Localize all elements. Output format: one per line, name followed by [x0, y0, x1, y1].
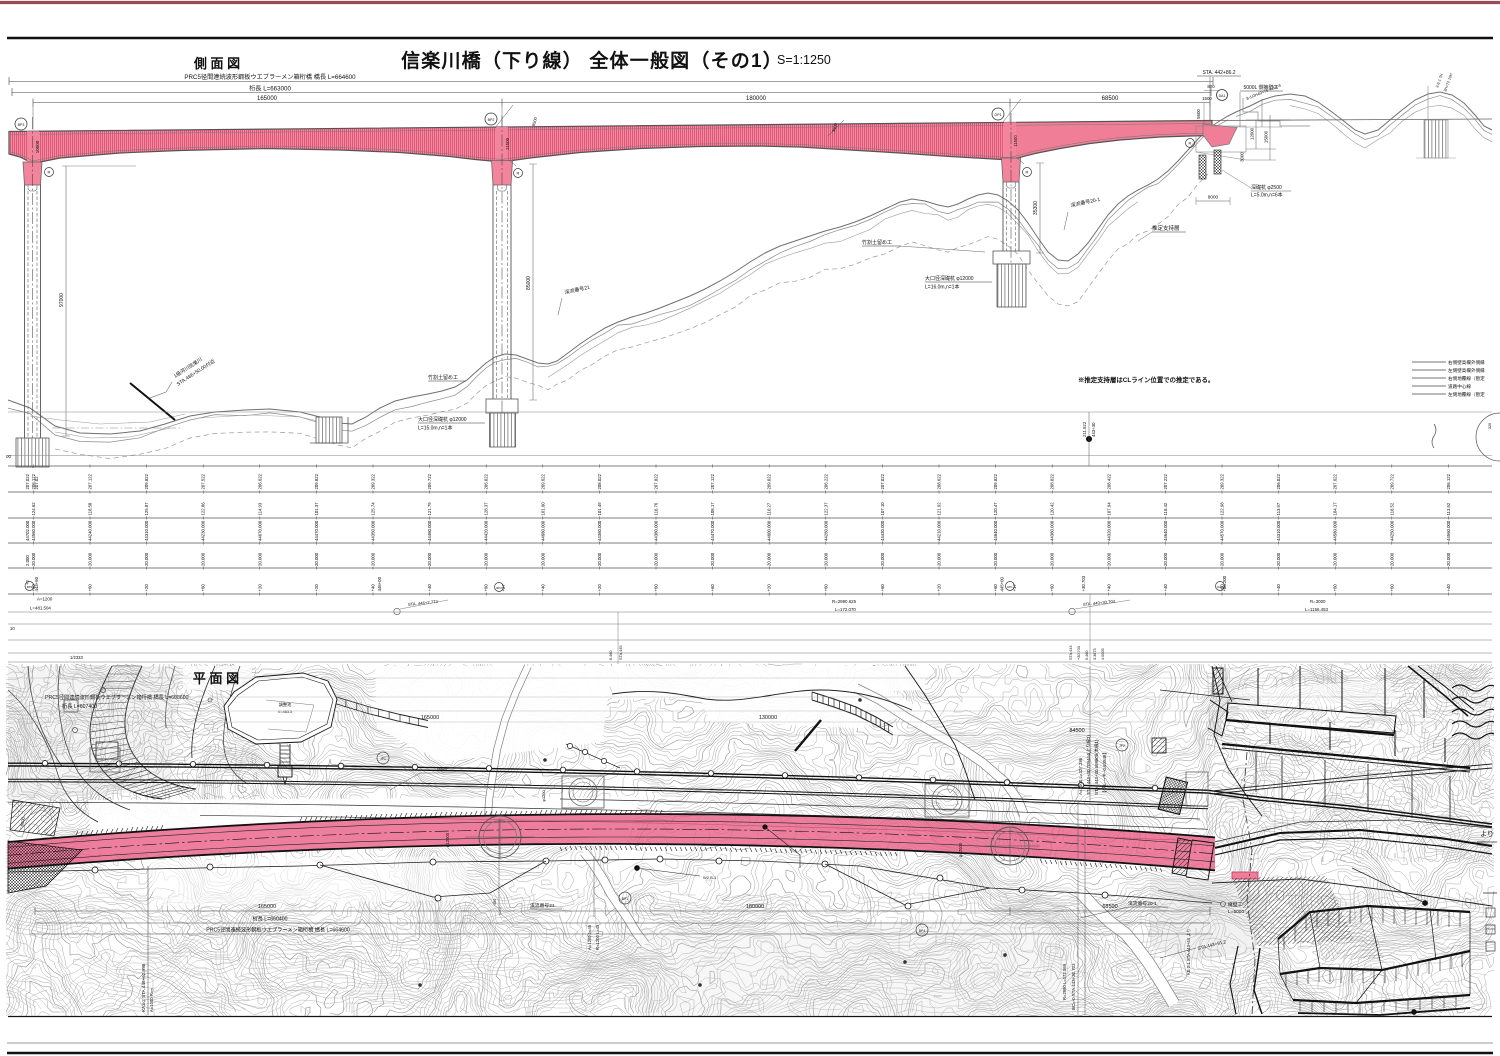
svg-text:+60: +60 — [88, 584, 93, 592]
svg-text:108.17: 108.17 — [710, 502, 715, 516]
svg-text:128.37: 128.37 — [484, 502, 489, 516]
svg-text:L=481.504: L=481.504 — [30, 606, 51, 611]
svg-text:10: 10 — [10, 626, 15, 631]
svg-text:44360.000: 44360.000 — [597, 520, 602, 541]
svg-text:渓流番号20-1: 渓流番号20-1 — [1128, 900, 1157, 907]
svg-text:20.000: 20.000 — [1050, 552, 1055, 566]
svg-text:114.93: 114.93 — [257, 502, 262, 515]
svg-text:+17: +17 — [1012, 584, 1017, 592]
svg-text:20.000: 20.000 — [1163, 552, 1168, 566]
svg-text:44680.000: 44680.000 — [540, 520, 545, 541]
svg-text:44310.000: 44310.000 — [1276, 520, 1281, 541]
svg-text:12000: 12000 — [1250, 127, 1255, 140]
svg-text:R: R — [48, 170, 51, 175]
svg-text:BP2: BP2 — [488, 118, 495, 122]
svg-text:20.000: 20.000 — [597, 552, 602, 566]
svg-text:PRC5径間連続波形鋼板ウエブラーメン箱桁橋 橋長 L=66: PRC5径間連続波形鋼板ウエブラーメン箱桁橋 橋長 L=664600 — [206, 926, 350, 934]
svg-text:44460.000: 44460.000 — [427, 520, 432, 541]
svg-text:+60: +60 — [1333, 584, 1338, 592]
svg-text:20.000: 20.000 — [1276, 552, 1281, 566]
svg-text:右側壁高欄外側縁: 右側壁高欄外側縁 — [1448, 359, 1485, 366]
svg-text:20.000: 20.000 — [144, 552, 149, 566]
svg-text:20.000: 20.000 — [427, 552, 432, 566]
svg-text:208.422: 208.422 — [1106, 473, 1111, 489]
svg-text:44260.000: 44260.000 — [823, 520, 828, 541]
svg-text:R=2990 L=172.069: R=2990 L=172.069 — [1062, 963, 1067, 1000]
svg-text:R=1200 L=45: R=1200 L=45 — [595, 924, 600, 950]
svg-text:L=5.0m,n=6本: L=5.0m,n=6本 — [1251, 192, 1283, 199]
svg-text:207.822: 207.822 — [654, 473, 659, 489]
svg-text:6.480: 6.480 — [609, 650, 613, 660]
svg-text:180000: 180000 — [746, 904, 764, 910]
svg-text:44600.000: 44600.000 — [767, 520, 772, 541]
svg-text:BP3: BP3 — [18, 123, 25, 127]
svg-text:+20: +20 — [314, 584, 319, 592]
svg-text:+20: +20 — [767, 584, 772, 592]
svg-text:44470.000: 44470.000 — [710, 520, 715, 541]
svg-text:深礎杭 φ2500: 深礎杭 φ2500 — [1251, 184, 1282, 191]
svg-text:φ12000: φ12000 — [445, 832, 450, 847]
svg-text:+20: +20 — [937, 584, 942, 592]
svg-text:L=15.0m,n=1本: L=15.0m,n=1本 — [418, 425, 452, 432]
svg-text:V=463.5: V=463.5 — [278, 710, 292, 714]
svg-text:44640.000: 44640.000 — [1163, 520, 1168, 541]
svg-text:165000: 165000 — [257, 96, 278, 102]
svg-text:+60: +60 — [993, 584, 998, 592]
svg-text:BP1: BP1 — [622, 897, 629, 901]
svg-text:122.98: 122.98 — [1220, 502, 1225, 516]
svg-text:+27: +27 — [501, 584, 506, 592]
svg-text:※推定支持層はCLライン位置での推定である。: ※推定支持層はCLライン位置での推定である。 — [1078, 375, 1214, 384]
svg-text:BP3: BP3 — [27, 585, 33, 589]
svg-text:20.000: 20.000 — [654, 552, 659, 566]
svg-text:44560.000: 44560.000 — [31, 520, 36, 541]
svg-text:44380.000: 44380.000 — [1050, 520, 1055, 541]
svg-text:121.79: 121.79 — [427, 502, 432, 516]
svg-text:A=1200 L=45: A=1200 L=45 — [587, 924, 592, 950]
svg-text:桁長 L=663000: 桁長 L=663000 — [249, 85, 291, 93]
svg-text:118.52: 118.52 — [1389, 502, 1394, 515]
svg-text:φ1200: φ1200 — [541, 789, 546, 801]
svg-text:97000: 97000 — [59, 293, 65, 307]
svg-text:44350.000: 44350.000 — [371, 520, 376, 541]
svg-text:20.000: 20.000 — [993, 552, 998, 566]
svg-text:209.722: 209.722 — [427, 473, 432, 489]
svg-text:446+00: 446+00 — [377, 576, 382, 591]
svg-text:20.000: 20.000 — [1389, 552, 1394, 566]
svg-text:206.022: 206.022 — [484, 473, 489, 489]
svg-text:44430.000: 44430.000 — [880, 520, 885, 541]
svg-text:121.92: 121.92 — [937, 502, 942, 516]
svg-text:20.000: 20.000 — [1220, 552, 1225, 566]
svg-text:0.480: 0.480 — [1085, 650, 1089, 660]
svg-text:+60: +60 — [201, 584, 206, 592]
svg-text:+40: +40 — [1446, 584, 1451, 592]
svg-text:DP1: DP1 — [995, 113, 1002, 117]
svg-text:10000: 10000 — [35, 140, 40, 153]
svg-text:20.000: 20.000 — [1446, 552, 1451, 566]
svg-text:竹割土留め工: 竹割土留め工 — [428, 374, 458, 381]
svg-text:207.122: 207.122 — [710, 473, 715, 489]
svg-text:3000: 3000 — [1240, 152, 1245, 162]
svg-text:44420.000: 44420.000 — [484, 520, 489, 541]
svg-text:+60: +60 — [484, 584, 489, 592]
svg-text:JP1: JP1 — [380, 757, 386, 761]
svg-text:207.622: 207.622 — [1333, 473, 1338, 489]
svg-text:平 面 図: 平 面 図 — [193, 671, 239, 686]
svg-text:PRC5径間連続波形鋼板ウエブラーメン箱桁橋 橋長 L=66: PRC5径間連続波形鋼板ウエブラーメン箱桁橋 橋長 L=664600 — [184, 73, 356, 81]
svg-text:443+60: 443+60 — [34, 576, 39, 591]
svg-text:209.822: 209.822 — [144, 473, 149, 489]
svg-text:208.022: 208.022 — [1050, 473, 1055, 489]
svg-text:165000: 165000 — [421, 715, 439, 721]
svg-text:A=1200: A=1200 — [37, 597, 53, 602]
svg-text:84500: 84500 — [1069, 728, 1084, 734]
svg-text:101.37: 101.37 — [314, 502, 319, 516]
svg-text:JP2: JP2 — [1119, 744, 1125, 748]
svg-text:443+30: 443+30 — [1091, 422, 1096, 437]
svg-text:渓流番号21: 渓流番号21 — [530, 902, 555, 909]
svg-text:道路中心線: 道路中心線 — [1448, 383, 1471, 390]
svg-text:44250.000: 44250.000 — [1389, 520, 1394, 541]
svg-text:+20: +20 — [597, 584, 602, 592]
svg-text:320: 320 — [1488, 423, 1492, 429]
svg-text:A=1000 R=∞: A=1000 R=∞ — [149, 988, 154, 1012]
svg-text:180000: 180000 — [746, 96, 767, 102]
svg-text:44570.000: 44570.000 — [1220, 520, 1225, 541]
svg-text:大口径深礎杭 φ12000: 大口径深礎杭 φ12000 — [418, 416, 467, 423]
svg-text:信楽川橋（下り線） 全体一般図（その1）: 信楽川橋（下り線） 全体一般図（その1） — [401, 49, 783, 72]
svg-text:206.622: 206.622 — [257, 473, 262, 489]
svg-text:調整池: 調整池 — [279, 701, 292, 708]
svg-text:207.022: 207.022 — [25, 473, 30, 489]
svg-text:推定支持層: 推定支持層 — [1152, 224, 1180, 232]
svg-text:+20: +20 — [144, 584, 149, 592]
svg-text:44320.000: 44320.000 — [1106, 520, 1111, 541]
svg-text:120.42: 120.42 — [1050, 502, 1055, 516]
svg-text:+40: +40 — [1276, 584, 1281, 592]
svg-text:44310.000: 44310.000 — [144, 520, 149, 541]
svg-text:20.000: 20.000 — [937, 552, 942, 566]
svg-text:5000L 側擁壁工: 5000L 側擁壁工 — [1243, 84, 1278, 91]
svg-text:11500: 11500 — [1013, 135, 1018, 147]
svg-text:2.000: 2.000 — [25, 555, 30, 566]
svg-text:右側地覆線（暫定: 右側地覆線（暫定 — [1448, 375, 1485, 382]
svg-text:+60: +60 — [823, 584, 828, 592]
svg-text:113.97: 113.97 — [1276, 502, 1281, 515]
svg-text:20.000: 20.000 — [257, 552, 262, 566]
svg-text:+20: +20 — [257, 584, 262, 592]
svg-text:206.022: 206.022 — [1276, 473, 1281, 489]
svg-text:L=16.0m,n=1本: L=16.0m,n=1本 — [925, 284, 959, 291]
svg-text:R: R — [517, 171, 520, 176]
svg-text:S=1:1250: S=1:1250 — [777, 53, 831, 67]
svg-text:11500: 11500 — [505, 137, 510, 150]
svg-text:KA3-2 STA.446+62.998: KA3-2 STA.446+62.998 — [141, 963, 146, 1012]
svg-text:208.022: 208.022 — [597, 473, 602, 489]
svg-text:STA.443: STA.443 — [1069, 646, 1073, 661]
svg-text:125.74: 125.74 — [371, 502, 376, 516]
svg-text:20.000: 20.000 — [1333, 552, 1338, 566]
svg-text:20.000: 20.000 — [767, 552, 772, 566]
svg-text:209.322: 209.322 — [371, 473, 376, 489]
svg-text:104.17: 104.17 — [1333, 502, 1338, 516]
svg-text:207.522: 207.522 — [201, 473, 206, 489]
svg-text:桁長 L=660400: 桁長 L=660400 — [252, 915, 287, 923]
svg-text:118.58: 118.58 — [88, 502, 93, 515]
svg-text:85000: 85000 — [526, 276, 532, 290]
svg-text:L=1156.453: L=1156.453 — [1305, 607, 1329, 612]
svg-text:大口径深礎杭 φ12000: 大口径深礎杭 φ12000 — [925, 275, 974, 282]
svg-text:800: 800 — [1207, 84, 1215, 89]
svg-text:+86.200: +86.200 — [1222, 575, 1227, 591]
svg-text:207.222: 207.222 — [1163, 473, 1168, 489]
svg-text:113.52: 113.52 — [1446, 502, 1451, 515]
svg-text:450: 450 — [493, 899, 497, 905]
svg-text:44580.000: 44580.000 — [1333, 520, 1338, 541]
svg-text:竹割土留め工: 竹割土留め工 — [862, 239, 892, 246]
svg-text:122.37: 122.37 — [823, 502, 828, 516]
svg-text:20.000: 20.000 — [371, 552, 376, 566]
svg-text:165000: 165000 — [258, 904, 276, 910]
svg-text:+30.703: +30.703 — [1081, 575, 1086, 591]
svg-text:STA.445: STA.445 — [619, 646, 623, 661]
svg-text:124.62: 124.62 — [31, 502, 36, 516]
svg-text:A=1000,L=327.286: A=1000,L=327.286 — [1078, 757, 1083, 795]
svg-text:120.47: 120.47 — [993, 502, 998, 516]
svg-text:101.49: 101.49 — [597, 502, 602, 516]
svg-text:20.000: 20.000 — [710, 552, 715, 566]
svg-text:207.122: 207.122 — [88, 473, 93, 489]
svg-text:44640.000: 44640.000 — [993, 520, 998, 541]
svg-text:擁壁工: 擁壁工 — [1228, 901, 1243, 908]
svg-text:118.42: 118.42 — [1163, 502, 1168, 515]
svg-text:44210.000: 44210.000 — [937, 520, 942, 541]
svg-text:44470.000: 44470.000 — [314, 520, 319, 541]
svg-text:桁長 L=607400: 桁長 L=607400 — [62, 702, 97, 710]
svg-text:【ブレーキ−0.63848】: 【ブレーキ−0.63848】 — [1101, 750, 1107, 795]
svg-text:44380.000: 44380.000 — [654, 520, 659, 541]
svg-text:+60: +60 — [1050, 584, 1055, 592]
svg-text:130000: 130000 — [759, 715, 777, 721]
svg-text:125.87: 125.87 — [144, 502, 149, 516]
svg-text:20.000: 20.000 — [484, 552, 489, 566]
svg-text:+30.703: +30.703 — [1077, 646, 1081, 660]
svg-text:209.722: 209.722 — [1389, 473, 1394, 489]
svg-text:側 面 図: 側 面 図 — [193, 56, 240, 71]
svg-text:+40: +40 — [1106, 584, 1111, 592]
svg-text:+60: +60 — [710, 584, 715, 592]
svg-text:44230.000: 44230.000 — [201, 520, 206, 541]
svg-text:20.000: 20.000 — [88, 552, 93, 566]
svg-text:44560.000: 44560.000 — [1446, 520, 1451, 541]
svg-text:+40: +40 — [540, 584, 545, 592]
svg-text:1/2333: 1/2333 — [70, 655, 83, 660]
svg-text:209.022: 209.022 — [767, 473, 772, 489]
svg-text:BP4: BP4 — [919, 929, 926, 933]
svg-text:20.000: 20.000 — [31, 552, 36, 566]
svg-text:6000: 6000 — [437, 766, 447, 771]
svg-text:206.122: 206.122 — [1446, 473, 1451, 489]
svg-text:00: 00 — [6, 454, 12, 459]
svg-text:15000: 15000 — [1264, 130, 1269, 143]
svg-text:44240.000: 44240.000 — [88, 520, 93, 541]
svg-text:107.94: 107.94 — [1106, 502, 1111, 516]
svg-text:W2.B-1: W2.B-1 — [703, 875, 717, 880]
svg-text:R: R — [1026, 170, 1029, 175]
svg-text:左側壁高欄外側縁: 左側壁高欄外側縁 — [1448, 367, 1485, 374]
svg-text:STA. 442+86.2: STA. 442+86.2 — [1202, 70, 1235, 76]
svg-text:110.27: 110.27 — [767, 502, 772, 515]
svg-text:207.022: 207.022 — [880, 473, 885, 489]
svg-text:445+00: 445+00 — [1000, 576, 1005, 591]
svg-text:+40: +40 — [1163, 584, 1168, 592]
svg-text:35300: 35300 — [1033, 201, 1039, 215]
svg-text:左側地覆線（暫定: 左側地覆線（暫定 — [1448, 391, 1485, 398]
svg-text:101.60: 101.60 — [540, 502, 545, 516]
svg-text:206.222: 206.222 — [823, 473, 828, 489]
svg-text:4.0005: 4.0005 — [1101, 648, 1105, 660]
svg-text:R=2990.625: R=2990.625 — [832, 599, 857, 604]
svg-text:3.3875: 3.3875 — [1093, 648, 1097, 660]
svg-text:20.000: 20.000 — [823, 552, 828, 566]
svg-text:L=172.070: L=172.070 — [835, 607, 856, 612]
svg-text:DA1: DA1 — [1219, 94, 1226, 98]
svg-text:STA. 443+30.709444(上り線2): STA. 443+30.709444(上り線2) — [1085, 735, 1092, 795]
svg-text:R: R — [1189, 141, 1192, 146]
svg-text:20.000: 20.000 — [1106, 552, 1111, 566]
svg-text:R=3000: R=3000 — [1310, 599, 1326, 604]
svg-text:+60: +60 — [654, 584, 659, 592]
svg-text:211.522: 211.522 — [1082, 421, 1087, 437]
svg-text:φ12000: φ12000 — [958, 842, 963, 857]
svg-text:より: より — [1480, 830, 1494, 838]
svg-text:68500: 68500 — [1102, 904, 1117, 910]
svg-text:209.622: 209.622 — [540, 473, 545, 489]
svg-text:8000: 8000 — [1208, 195, 1219, 200]
svg-text:20.000: 20.000 — [314, 552, 319, 566]
svg-text:209.322: 209.322 — [1220, 473, 1225, 489]
svg-text:107.10: 107.10 — [880, 502, 885, 516]
svg-text:68500: 68500 — [1102, 96, 1119, 102]
svg-text:122.86: 122.86 — [201, 502, 206, 516]
svg-text:44702.000: 44702.000 — [25, 520, 30, 541]
svg-text:1500: 1500 — [1202, 96, 1212, 101]
svg-text:+40: +40 — [427, 584, 432, 592]
svg-text:44670.000: 44670.000 — [257, 520, 262, 541]
svg-text:20.000: 20.000 — [201, 552, 206, 566]
svg-text:5500: 5500 — [1196, 109, 1201, 119]
svg-text:20.000: 20.000 — [880, 552, 885, 566]
svg-text:20.000: 20.000 — [540, 552, 545, 566]
svg-text:208.622: 208.622 — [937, 473, 942, 489]
svg-text:STA. 443+30.669806(本線1): STA. 443+30.669806(本線1) — [1093, 739, 1100, 795]
svg-text:116.76: 116.76 — [654, 502, 659, 515]
svg-text:BC=-0 STA.443+30.703: BC=-0 STA.443+30.703 — [1071, 963, 1076, 1010]
svg-text:+40: +40 — [371, 584, 376, 592]
svg-text:209.822: 209.822 — [993, 473, 998, 489]
svg-text:+60: +60 — [880, 584, 885, 592]
svg-text:L=5000: L=5000 — [1228, 909, 1244, 915]
svg-text:207.02: 207.02 — [34, 476, 39, 490]
svg-text:209.822: 209.822 — [314, 473, 319, 489]
svg-text:+60: +60 — [1389, 584, 1394, 592]
